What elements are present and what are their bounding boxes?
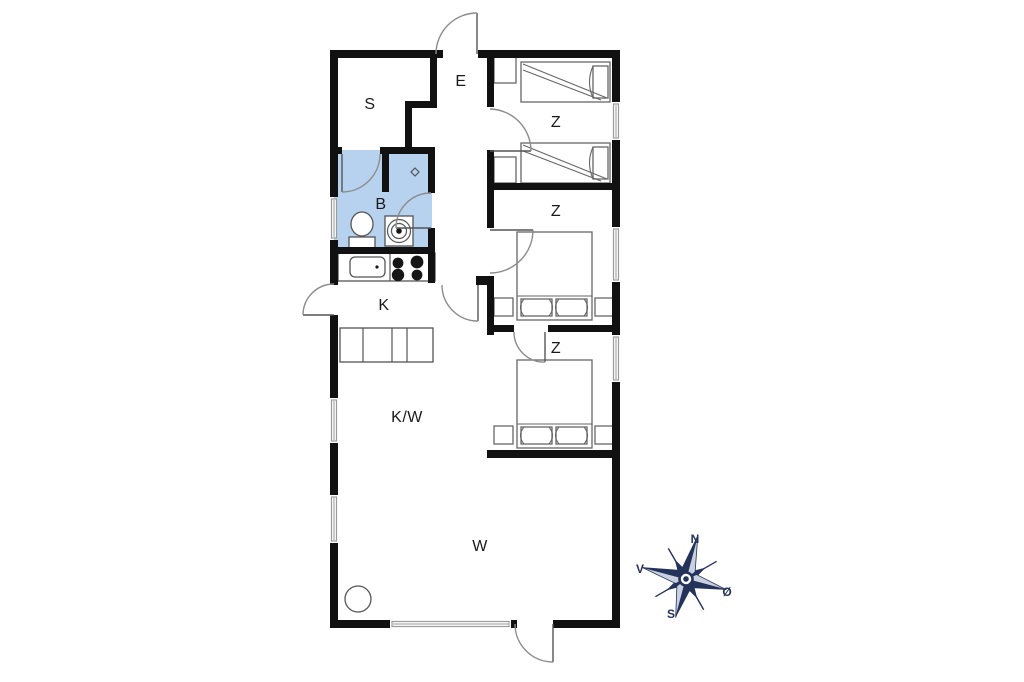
closet (494, 157, 516, 183)
room-label-living: W (472, 538, 488, 556)
room-label-entrance: E (455, 73, 466, 91)
room-label-s: S (364, 96, 375, 114)
room-label-bathroom: B (375, 196, 386, 214)
washbasin-icon (385, 216, 413, 246)
compass-label-south: S (667, 607, 675, 621)
floorplan-page: S E Z B Z K Z K/W W N Ø S V (0, 0, 1024, 682)
compass-label-west: V (636, 562, 644, 576)
compass-rose-icon (631, 523, 738, 629)
single-bed (521, 143, 610, 183)
compass-label-north: N (691, 532, 700, 546)
single-bed (521, 62, 610, 102)
kitchen-sink-icon (350, 257, 385, 277)
nightstand (595, 298, 613, 316)
kitchen-counter (338, 253, 435, 281)
room-label-bedroom-top: Z (551, 114, 561, 132)
closet (494, 57, 516, 83)
room-label-bedroom-middle: Z (551, 203, 561, 221)
nightstand (494, 298, 513, 316)
room-label-kitchen: K (378, 297, 389, 315)
nightstand (494, 426, 513, 444)
compass-label-east: Ø (722, 585, 731, 599)
double-bed (494, 360, 613, 448)
double-bed (494, 232, 613, 320)
nightstand (595, 426, 613, 444)
wood-stove-icon (345, 586, 371, 612)
toilet-icon (349, 212, 375, 249)
floorplan-canvas (0, 0, 1024, 682)
room-label-bedroom-bottom: Z (551, 340, 561, 358)
room-label-kitchen-living: K/W (391, 409, 423, 427)
kitchen-island (340, 328, 433, 362)
